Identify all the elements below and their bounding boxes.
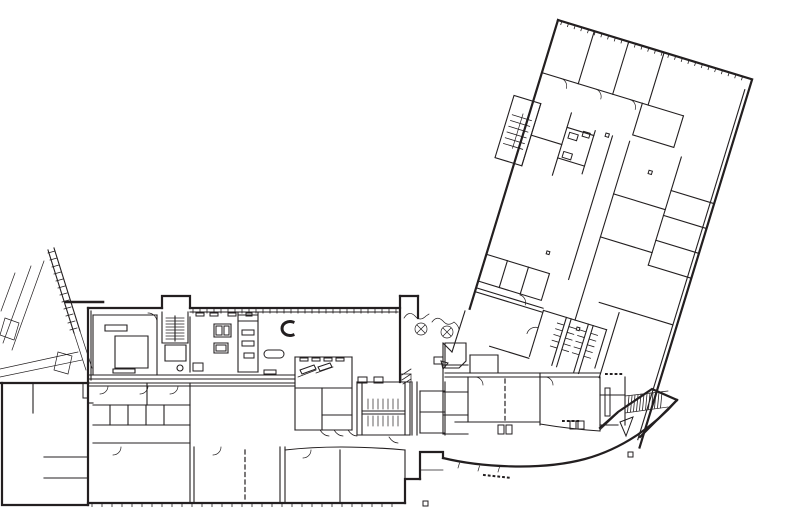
angled-wing-inner-wall-0 <box>638 90 745 440</box>
main-wing-fine-wall-21 <box>475 377 553 385</box>
angled-wing-inner-wall-8 <box>656 240 699 253</box>
main-wing-fills-wall-5 <box>300 363 332 374</box>
main-wing-fills-wall-6 <box>300 358 344 361</box>
main-wing-fine-wall-13 <box>0 318 19 340</box>
floor-plan-svg <box>0 0 793 523</box>
main-wing-fills-wall-3 <box>264 370 276 374</box>
angled-wing-inner-wall-17 <box>499 261 507 288</box>
angled-wing-inner-wall-24 <box>552 113 571 175</box>
main-wing-fills-wall-11 <box>605 388 610 416</box>
main-wing-fine-wall-5 <box>432 318 459 329</box>
main-wing-inner-wall-78 <box>48 250 74 333</box>
angled-wing-inner-wall-14 <box>600 237 652 253</box>
main-wing-inner-wall-44 <box>470 355 498 373</box>
angled-wing-inner-wall-15 <box>671 157 681 190</box>
angled-wing-outer-wall-0 <box>445 20 752 448</box>
angled-wing-inner-wall-28 <box>543 310 606 329</box>
main-wing-inner-wall-81 <box>443 343 452 352</box>
main-wing-fills-wall-0 <box>193 326 229 371</box>
angled-wing-inner-wall-16 <box>478 254 549 300</box>
main-wing-inner-wall-7 <box>115 336 148 368</box>
main-wing-inner-wall-8 <box>105 325 127 331</box>
floor-plan-canvas <box>0 0 793 523</box>
angled-wing-hatch-wall-1 <box>550 323 597 358</box>
main-wing-inner-wall-14 <box>177 365 183 371</box>
main-wing-fine-wall-15 <box>74 331 92 370</box>
main-wing-inner-wall-12 <box>165 345 186 361</box>
main-wing-fills-wall-1 <box>238 315 258 358</box>
angled-wing-inner-wall-2 <box>578 31 594 84</box>
main-wing-inner-wall-9 <box>113 369 135 373</box>
main-wing-inner-wall-73 <box>285 447 405 450</box>
angled-wing-inner-wall-29 <box>529 310 543 356</box>
main-wing-fine-wall-8 <box>368 399 398 409</box>
main-wing-fills-wall-2 <box>264 350 284 358</box>
angled-wing-inner-wall-10 <box>648 191 671 266</box>
angled-wing-inner-wall-6 <box>671 191 714 204</box>
main-wing-group <box>0 248 677 507</box>
main-wing-fine-wall-4 <box>404 313 429 319</box>
angled-wing-inner-wall-3 <box>613 42 629 95</box>
main-wing-fine-wall-0 <box>148 313 157 322</box>
main-wing-fine-wall-9 <box>368 416 398 426</box>
main-wing-fine-wall-7 <box>441 326 453 338</box>
main-wing-fine-wall-2 <box>113 447 311 458</box>
main-wing-outer-wall-6 <box>443 400 677 466</box>
main-wing-outer-wall-1 <box>2 383 88 505</box>
angled-wing-inner-wall-35 <box>490 346 529 358</box>
main-wing-outer-wall-5 <box>420 452 443 479</box>
angled-wing-inner-wall-36 <box>599 302 673 325</box>
angled-wing-inner-wall-5 <box>633 103 684 147</box>
main-wing-fine-wall-6 <box>415 323 427 335</box>
main-wing-fills-wall-10 <box>498 421 584 434</box>
angled-wing-inner-wall-20 <box>475 292 542 312</box>
angled-wing-fills-wall-1 <box>648 170 652 174</box>
main-wing-inner-wall-79 <box>54 248 80 331</box>
gym-interior-group <box>33 383 93 478</box>
main-wing-fine-wall-11 <box>1 261 44 350</box>
main-wing-fine-wall-3 <box>320 430 398 443</box>
main-wing-thick-wall-0 <box>282 322 293 336</box>
main-wing-inner-wall-80 <box>452 311 465 352</box>
main-wing-outer-wall-4 <box>405 479 420 503</box>
angled-wing-inner-wall-11 <box>569 136 613 279</box>
main-wing-fine-wall-1 <box>100 386 178 394</box>
main-wing-fine-wall-12 <box>0 352 82 377</box>
angled-wing-inner-wall-23 <box>531 135 562 144</box>
angled-wing-inner-wall-9 <box>648 265 691 278</box>
angled-wing-outer-wall-1 <box>470 20 558 309</box>
main-wing-inner-wall-43 <box>445 343 466 368</box>
angled-wing-group <box>426 14 752 447</box>
angled-wing-inner-wall-4 <box>648 52 664 105</box>
angled-wing-fills-wall-0 <box>605 133 609 137</box>
angled-wing-fills-wall-2 <box>576 327 580 331</box>
angled-wing-inner-wall-13 <box>614 194 666 210</box>
main-wing-outer-wall-8 <box>162 296 190 308</box>
angled-wing-fills-wall-3 <box>546 251 550 255</box>
angled-wing-inner-wall-7 <box>663 215 706 228</box>
main-wing-fills-wall-14 <box>620 417 633 436</box>
main-wing-dotted-wall-2 <box>484 475 512 478</box>
angled-wing-inner-wall-18 <box>520 267 528 294</box>
